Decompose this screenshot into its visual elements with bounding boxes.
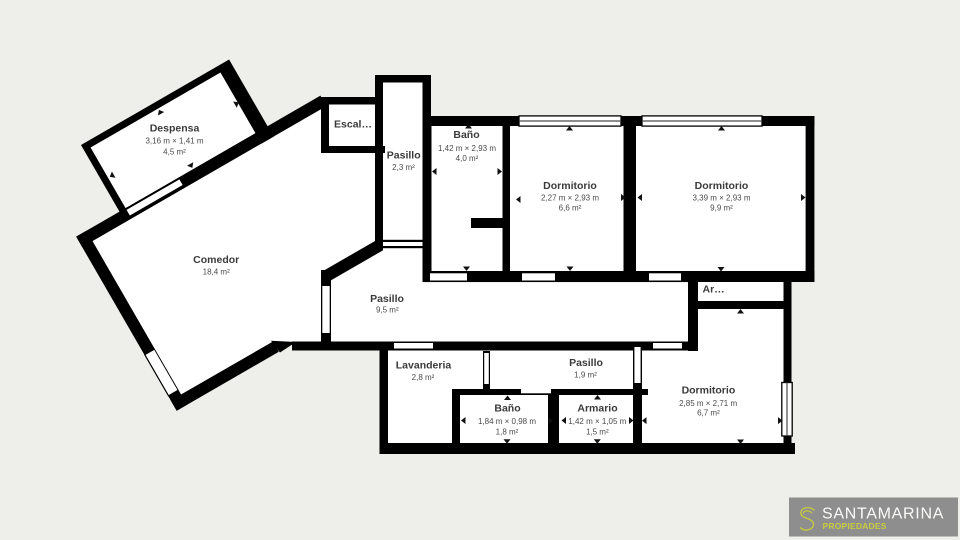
svg-text:1,42 m × 1,05 m: 1,42 m × 1,05 m bbox=[568, 417, 626, 426]
svg-text:2,27 m × 2,93 m: 2,27 m × 2,93 m bbox=[541, 194, 599, 203]
svg-text:Baño: Baño bbox=[453, 129, 479, 141]
svg-text:3,16 m × 1,41 m: 3,16 m × 1,41 m bbox=[145, 137, 203, 146]
svg-text:6,7 m²: 6,7 m² bbox=[697, 408, 720, 417]
svg-text:Lavanderia: Lavanderia bbox=[396, 360, 452, 372]
svg-text:Dormitorio: Dormitorio bbox=[682, 385, 736, 397]
svg-text:3,39 m × 2,93 m: 3,39 m × 2,93 m bbox=[692, 194, 750, 203]
svg-text:1,5 m²: 1,5 m² bbox=[586, 427, 609, 436]
svg-text:4,0 m²: 4,0 m² bbox=[456, 154, 479, 163]
svg-text:Ar…: Ar… bbox=[703, 284, 725, 296]
svg-text:Pasillo: Pasillo bbox=[370, 293, 404, 305]
svg-text:9,5 m²: 9,5 m² bbox=[376, 305, 399, 314]
svg-text:2,8 m²: 2,8 m² bbox=[412, 373, 435, 382]
svg-text:Dormitorio: Dormitorio bbox=[695, 180, 749, 192]
svg-text:1,42 m × 2,93 m: 1,42 m × 2,93 m bbox=[438, 144, 496, 153]
svg-text:18,4 m²: 18,4 m² bbox=[203, 267, 230, 276]
svg-text:Armario: Armario bbox=[577, 403, 617, 415]
svg-text:Comedor: Comedor bbox=[193, 254, 239, 266]
svg-text:1,84 m × 0,98 m: 1,84 m × 0,98 m bbox=[478, 417, 536, 426]
svg-text:Pasillo: Pasillo bbox=[569, 357, 603, 369]
svg-text:2,3 m²: 2,3 m² bbox=[392, 163, 415, 172]
svg-text:2,85 m × 2,71 m: 2,85 m × 2,71 m bbox=[679, 399, 737, 408]
svg-text:PROPIEDADES: PROPIEDADES bbox=[823, 521, 887, 531]
svg-text:Dormitorio: Dormitorio bbox=[543, 180, 597, 192]
svg-text:1,8 m²: 1,8 m² bbox=[496, 427, 519, 436]
svg-text:4,5 m²: 4,5 m² bbox=[163, 147, 186, 156]
svg-text:Pasillo: Pasillo bbox=[387, 149, 421, 161]
svg-text:Escal…: Escal… bbox=[334, 118, 372, 130]
svg-text:Baño: Baño bbox=[494, 403, 520, 415]
svg-text:6,6 m²: 6,6 m² bbox=[559, 204, 582, 213]
svg-text:Despensa: Despensa bbox=[150, 122, 200, 134]
svg-text:9,9 m²: 9,9 m² bbox=[710, 204, 733, 213]
svg-text:1,9 m²: 1,9 m² bbox=[574, 370, 597, 379]
